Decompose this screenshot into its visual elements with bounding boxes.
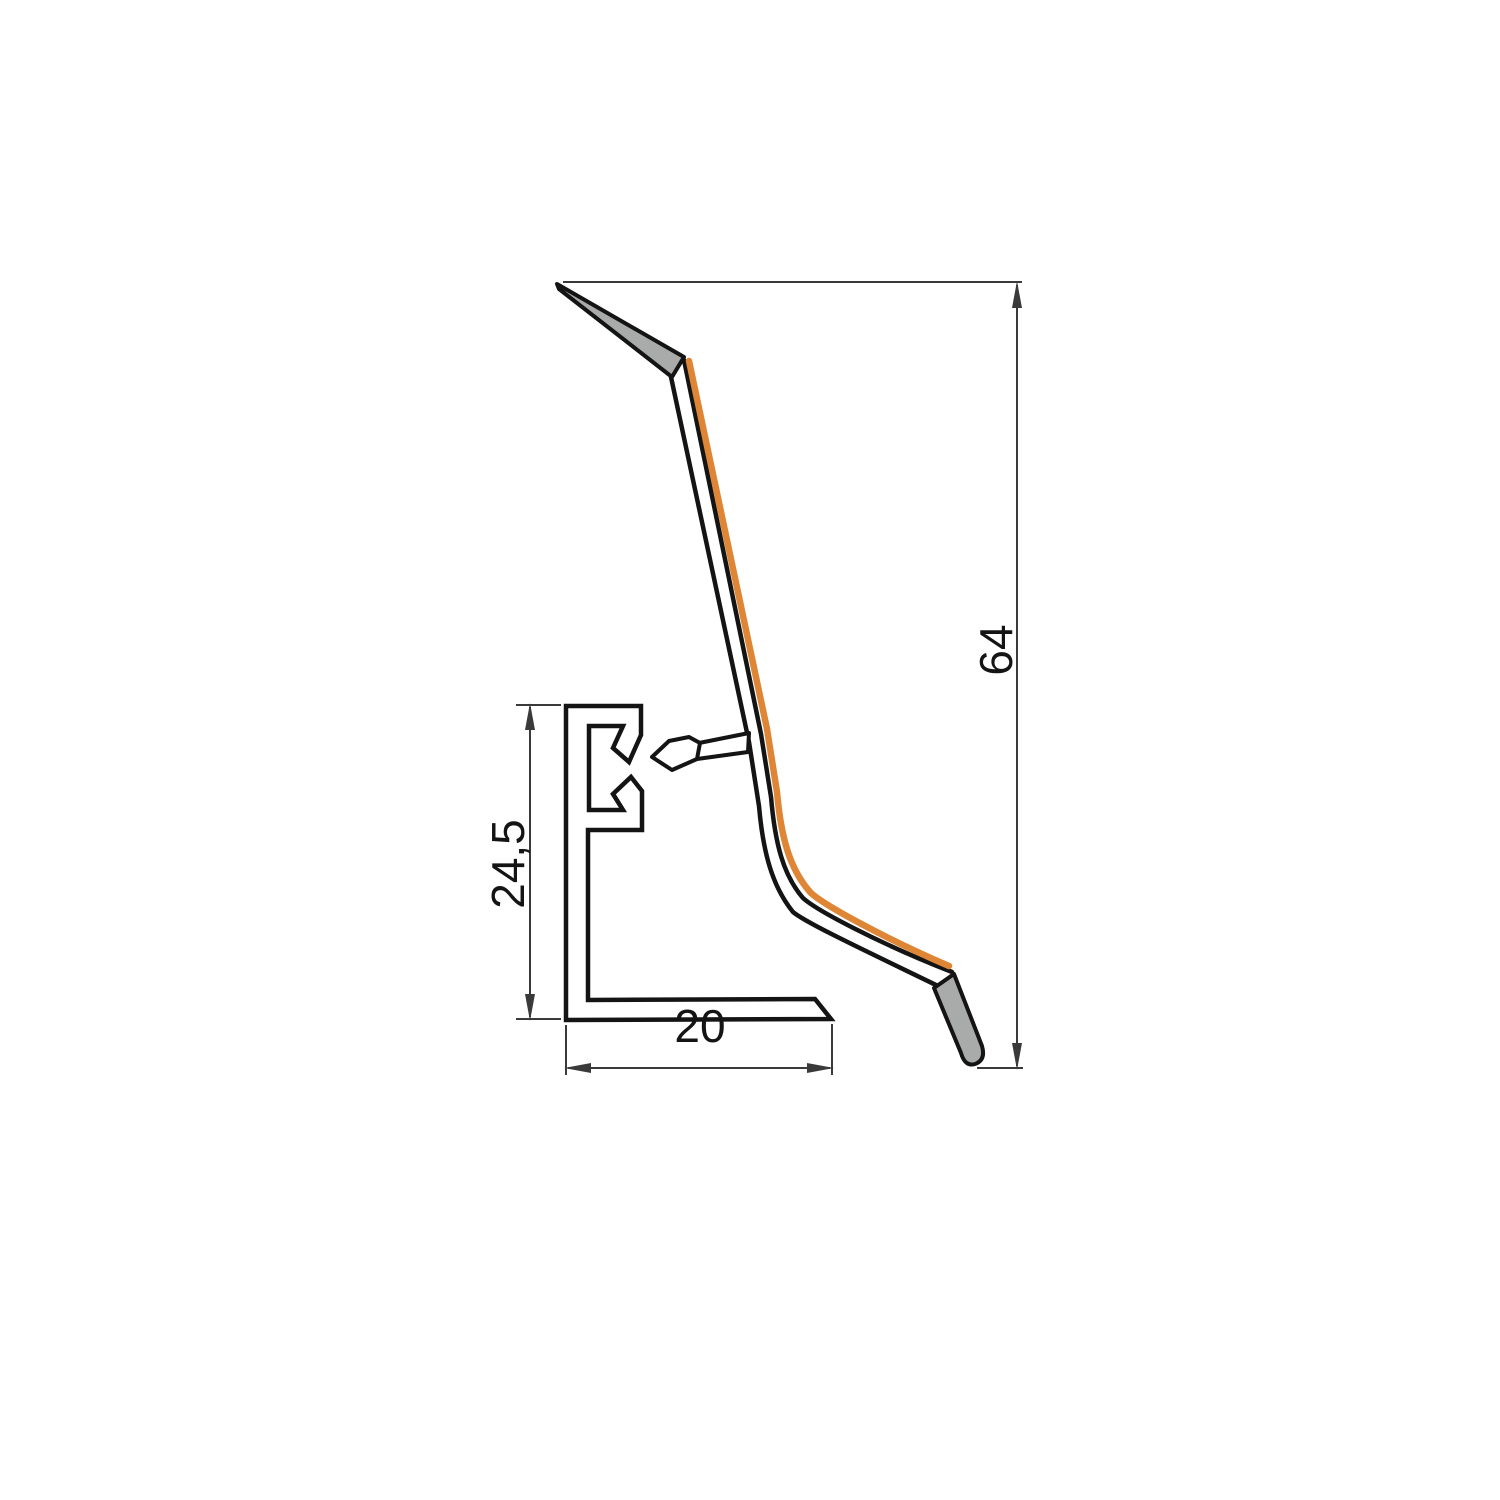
dim-label-rail-height: 24,5 <box>482 819 534 909</box>
arrowhead-rail-height-top <box>525 703 535 730</box>
bottom-flex-lip <box>934 974 983 1065</box>
accent-strip <box>689 361 949 966</box>
dim-label-foot-width: 20 <box>674 1000 725 1052</box>
skirting-profile-drawing: 64 24,5 20 <box>0 0 1500 1500</box>
arrowhead-rail-height-bottom <box>525 994 535 1021</box>
panel-outer-line <box>684 360 952 972</box>
clip-stem <box>697 733 749 759</box>
dim-label-total-height: 64 <box>970 624 1022 675</box>
drawing-canvas: 64 24,5 20 <box>0 0 1500 1500</box>
clip-barb <box>652 737 700 770</box>
arrowhead-total-height-top <box>1012 281 1022 308</box>
arrowhead-foot-width-left <box>564 1063 591 1073</box>
arrowhead-foot-width-right <box>807 1063 834 1073</box>
top-flex-lip <box>557 284 684 377</box>
arrowhead-total-height-bottom <box>1012 1043 1022 1070</box>
